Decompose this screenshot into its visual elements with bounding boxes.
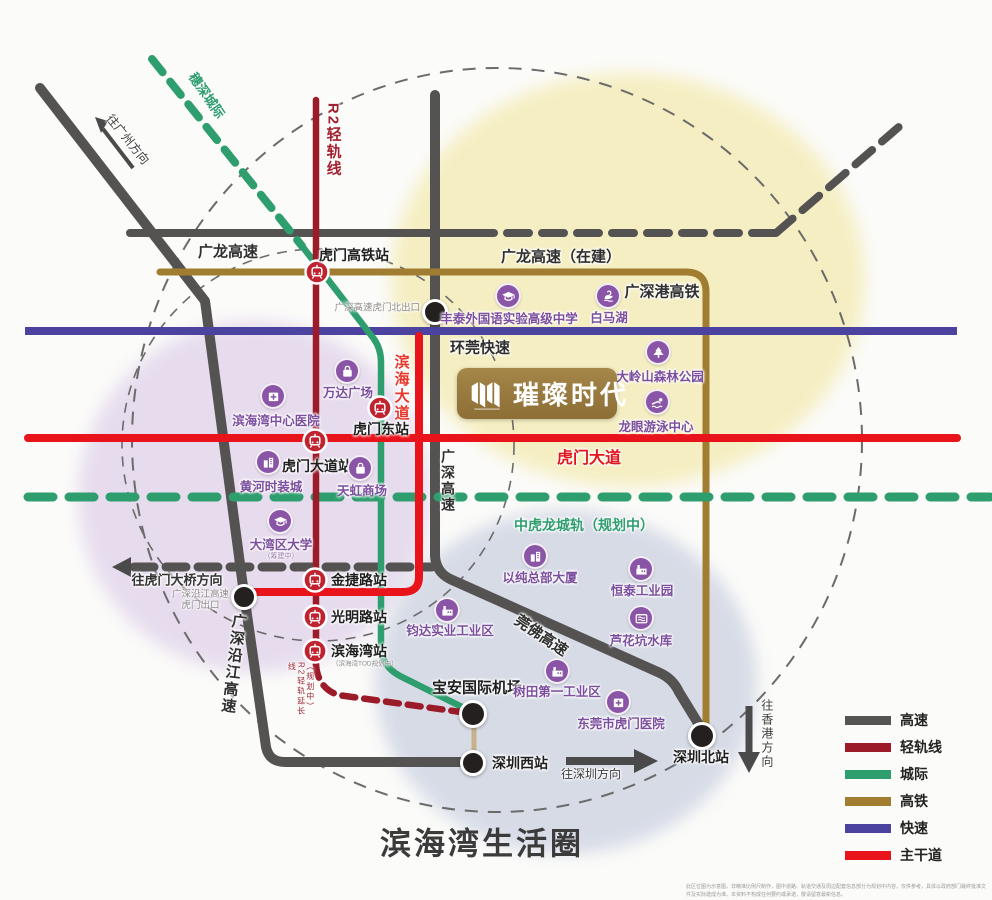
legend-swatch [845,770,891,779]
legend-row: 轻轨线 [845,737,942,757]
legend-label: 高速 [900,710,928,730]
project-name: 璀璨时代 [513,375,629,412]
folding-screens-logo-icon [469,376,505,412]
legend-swatch [845,851,891,860]
yellow-zone [391,73,865,487]
legend-row: 高速 [845,710,942,730]
disclaimer-text: 此区位图为示意图，非精准比例尺制作，图中道路、轨道交通及周边配套信息部分为规划中… [686,883,986,899]
to-hongkong-arrowhead [738,752,760,773]
legend-label: 城际 [900,764,928,784]
legend-swatch [845,716,891,725]
to-guangzhou-arrow [103,129,133,168]
legend-swatch [845,797,891,806]
legend-label: 轻轨线 [900,737,942,757]
legend-row: 主干道 [845,845,942,865]
legend-swatch [845,743,891,752]
map-canvas [0,0,992,900]
legend-swatch [845,824,891,833]
location-map: 广龙高速广龙高速（在建）R2轻轨线穗深城际往广州方向环莞快速滨海大道虎门大道广深… [0,0,992,900]
legend-label: 主干道 [900,845,942,865]
legend-row: 高铁 [845,791,942,811]
map-title: 滨海湾生活圈 [380,819,584,864]
legend-row: 快速 [845,818,942,838]
legend-label: 快速 [900,818,928,838]
legend: 高速轻轨线城际高铁快速主干道 [845,710,942,872]
project-logo: 璀璨时代 [457,368,617,419]
rail-suishen-dashed [152,59,302,246]
legend-label: 高铁 [900,791,928,811]
legend-row: 城际 [845,764,942,784]
